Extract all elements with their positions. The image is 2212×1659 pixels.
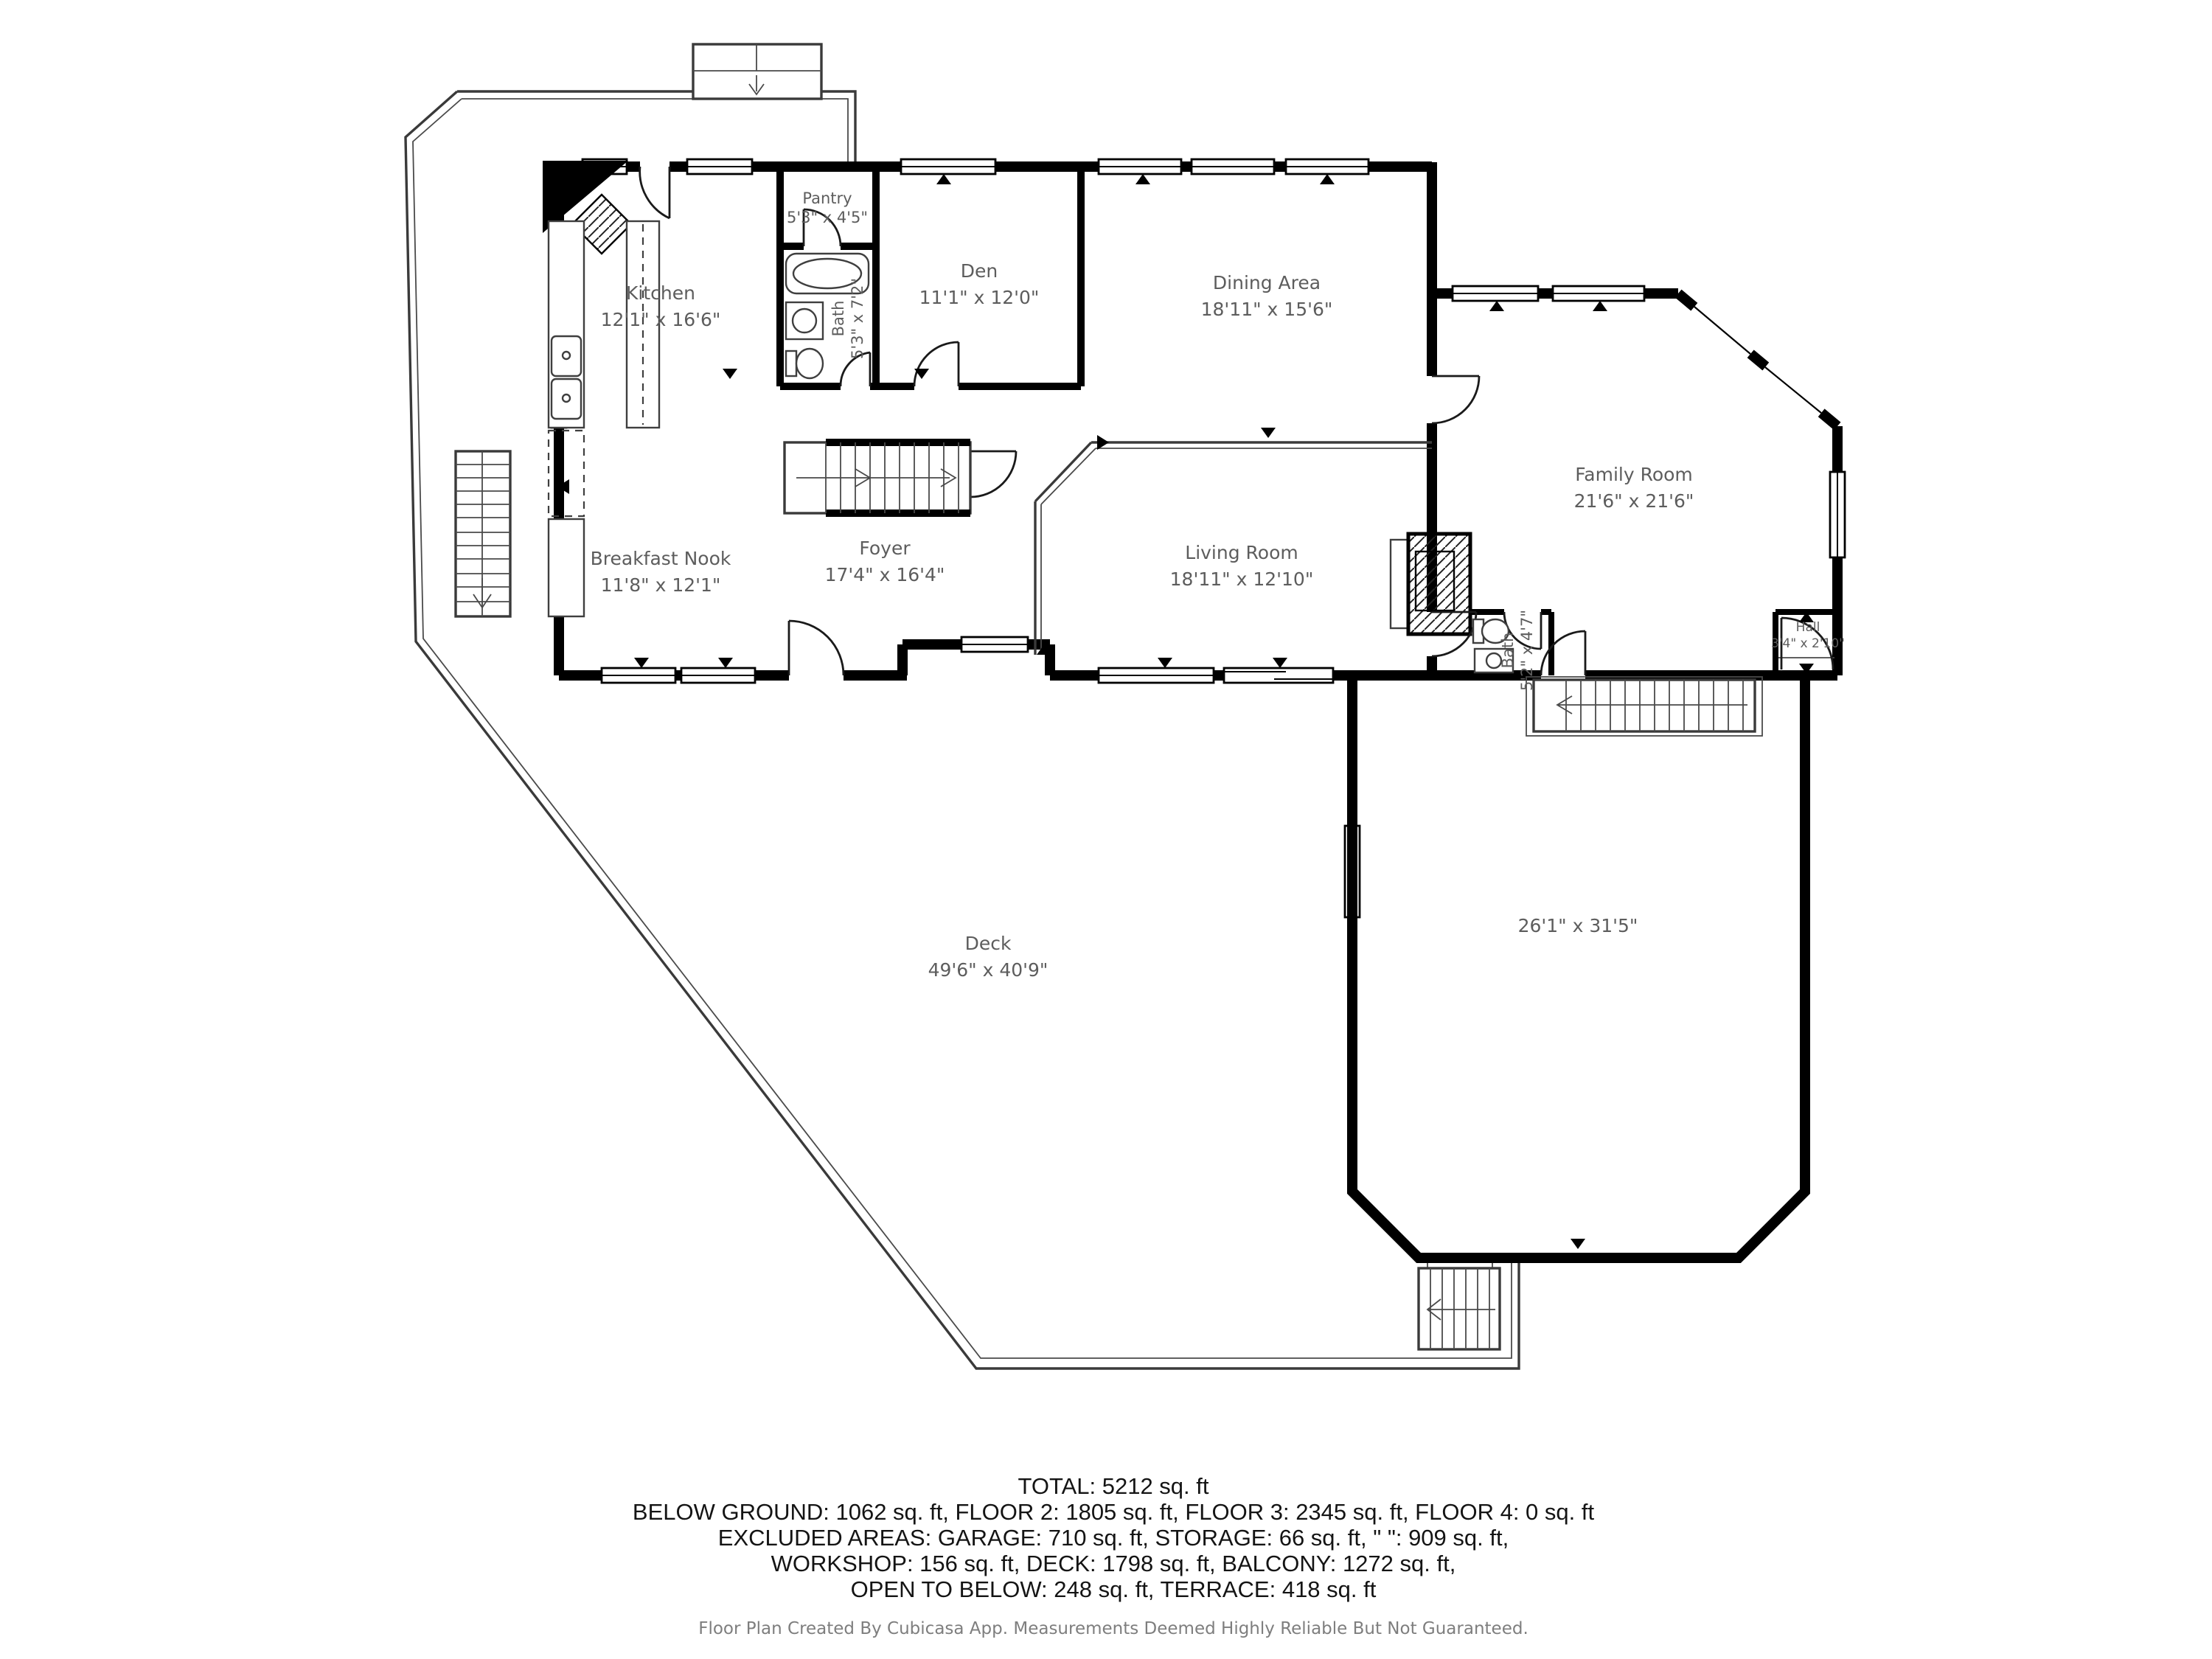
room-dims-hall: 3'4" x 2'10": [1771, 636, 1845, 651]
room-dims-kitchen: 12'1" x 16'6": [601, 309, 721, 330]
room-dims-living: 18'11" x 12'10": [1170, 568, 1314, 590]
room-dims-balcony: 26'1" x 31'5": [1518, 915, 1638, 936]
room-dims-foyer: 17'4" x 16'4": [825, 564, 945, 585]
doors: [640, 167, 1833, 675]
deck-stair-bottom: [1419, 1258, 1500, 1349]
summary-excluded-1: EXCLUDED AREAS: GARAGE: 710 sq. ft, STOR…: [718, 1525, 1509, 1551]
room-dims-breakfast: 11'8" x 12'1": [601, 574, 721, 596]
footer-disclaimer: Floor Plan Created By Cubicasa App. Meas…: [698, 1619, 1528, 1638]
room-label-den: Den: [961, 260, 998, 282]
room-dims-dining: 18'11" x 15'6": [1201, 299, 1333, 320]
floor-plan-canvas: Kitchen 12'1" x 16'6" Pantry 5'3" x 4'5"…: [0, 0, 2212, 1659]
room-dims-den: 11'1" x 12'0": [919, 287, 1040, 308]
windows: [552, 159, 1845, 917]
room-dims-bath-lower: 5'2" x 4'7": [1518, 610, 1536, 691]
room-label-family: Family Room: [1575, 464, 1693, 485]
room-label-breakfast: Breakfast Nook: [591, 548, 731, 569]
room-dims-family: 21'6" x 21'6": [1574, 490, 1694, 512]
room-dims-bath-upper: 5'3" x 7'2": [849, 278, 866, 359]
room-label-dining: Dining Area: [1213, 272, 1321, 293]
lower-staircase: [1526, 677, 1762, 736]
summary-floors: BELOW GROUND: 1062 sq. ft, FLOOR 2: 1805…: [633, 1499, 1595, 1525]
summary-excluded-3: OPEN TO BELOW: 248 sq. ft, TERRACE: 418 …: [851, 1576, 1377, 1602]
summary-total: TOTAL: 5212 sq. ft: [1018, 1473, 1208, 1499]
foyer-staircase: [785, 442, 970, 513]
room-label-kitchen: Kitchen: [626, 282, 695, 304]
room-dims-pantry: 5'3" x 4'5": [787, 209, 868, 226]
room-label-living: Living Room: [1185, 542, 1298, 563]
room-label-bath-lower: Bath: [1499, 633, 1517, 669]
exterior-walls: [559, 162, 1837, 675]
area-summary: TOTAL: 5212 sq. ft BELOW GROUND: 1062 sq…: [633, 1473, 1595, 1638]
room-label-foyer: Foyer: [859, 538, 911, 559]
interior-walls: [780, 167, 1837, 675]
deck-stair-left: [456, 451, 510, 616]
room-label-hall: Hall: [1796, 620, 1820, 635]
room-label-deck: Deck: [965, 933, 1012, 954]
summary-excluded-2: WORKSHOP: 156 sq. ft, DECK: 1798 sq. ft,…: [771, 1551, 1456, 1576]
room-dims-deck: 49'6" x 40'9": [928, 959, 1048, 981]
deck-stair-top: [693, 44, 821, 99]
balcony-walls: [1352, 675, 1805, 1258]
room-label-pantry: Pantry: [802, 189, 852, 207]
chimney: [1391, 534, 1470, 634]
room-label-bath-upper: Bath: [829, 301, 847, 337]
